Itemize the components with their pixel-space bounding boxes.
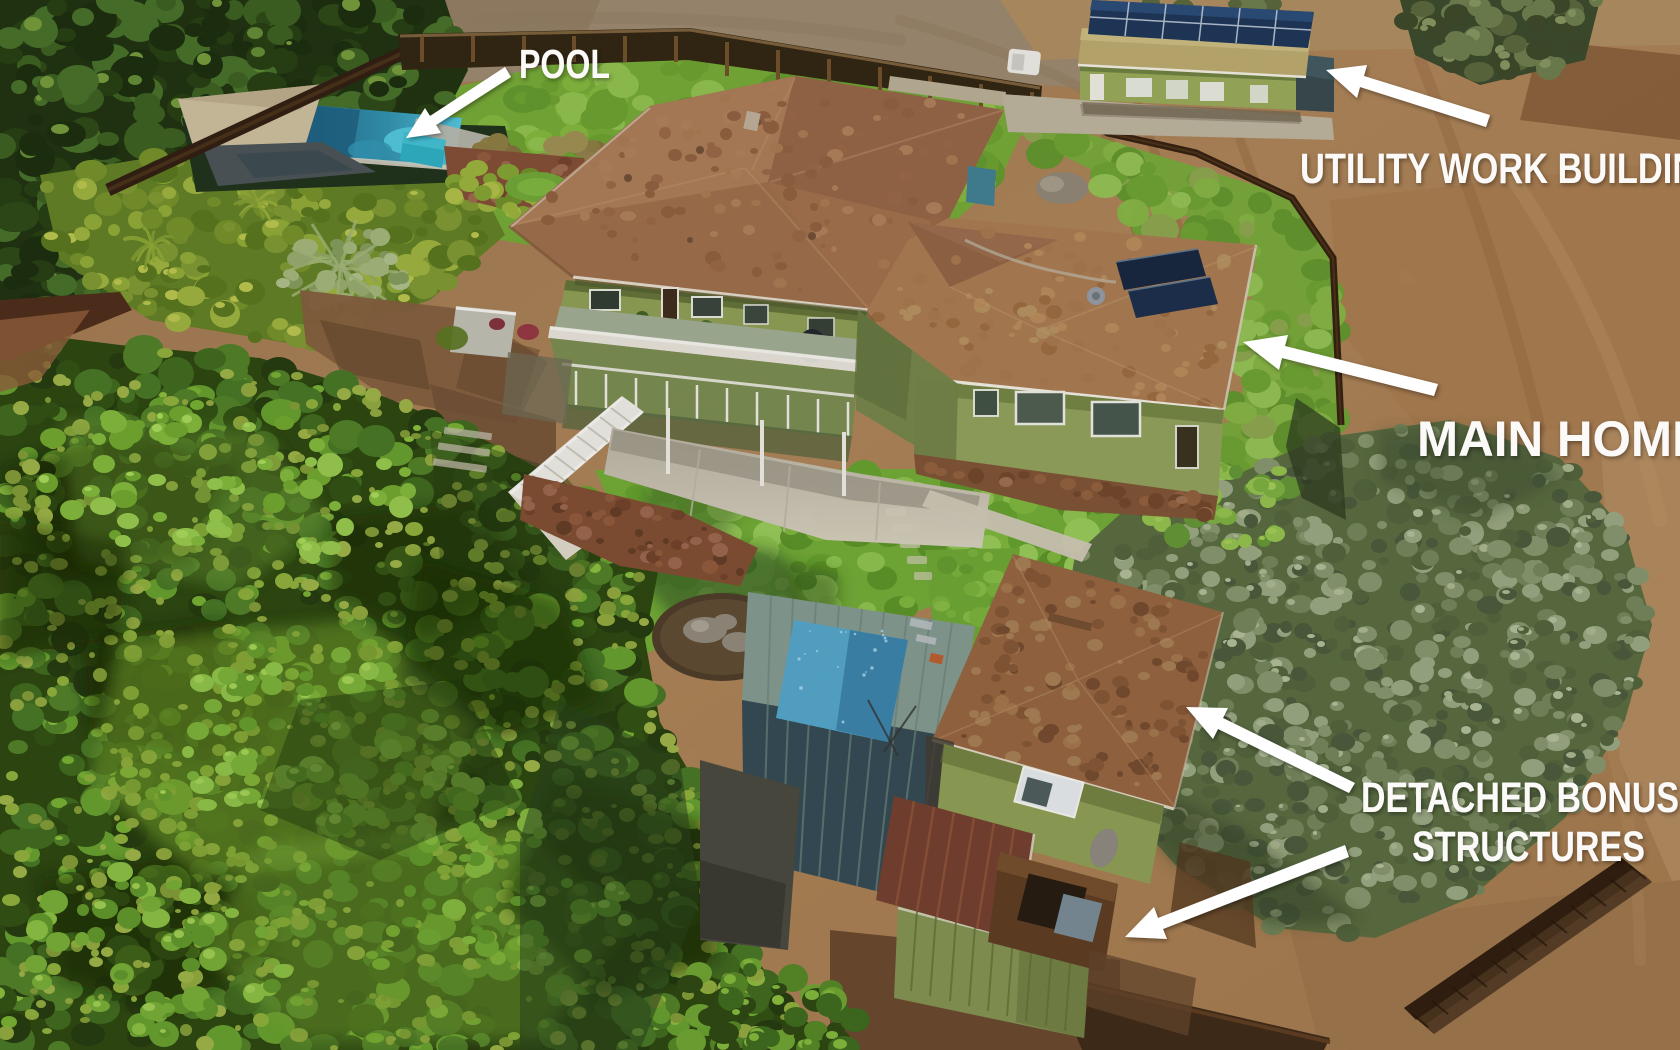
svg-text:UTILITY WORK BUILDING: UTILITY WORK BUILDING	[1300, 145, 1680, 193]
svg-text:DETACHED BONUS: DETACHED BONUS	[1361, 774, 1679, 822]
svg-text:STRUCTURES: STRUCTURES	[1412, 823, 1645, 871]
svg-text:MAIN HOME: MAIN HOME	[1417, 411, 1680, 467]
svg-text:POOL: POOL	[519, 41, 610, 87]
